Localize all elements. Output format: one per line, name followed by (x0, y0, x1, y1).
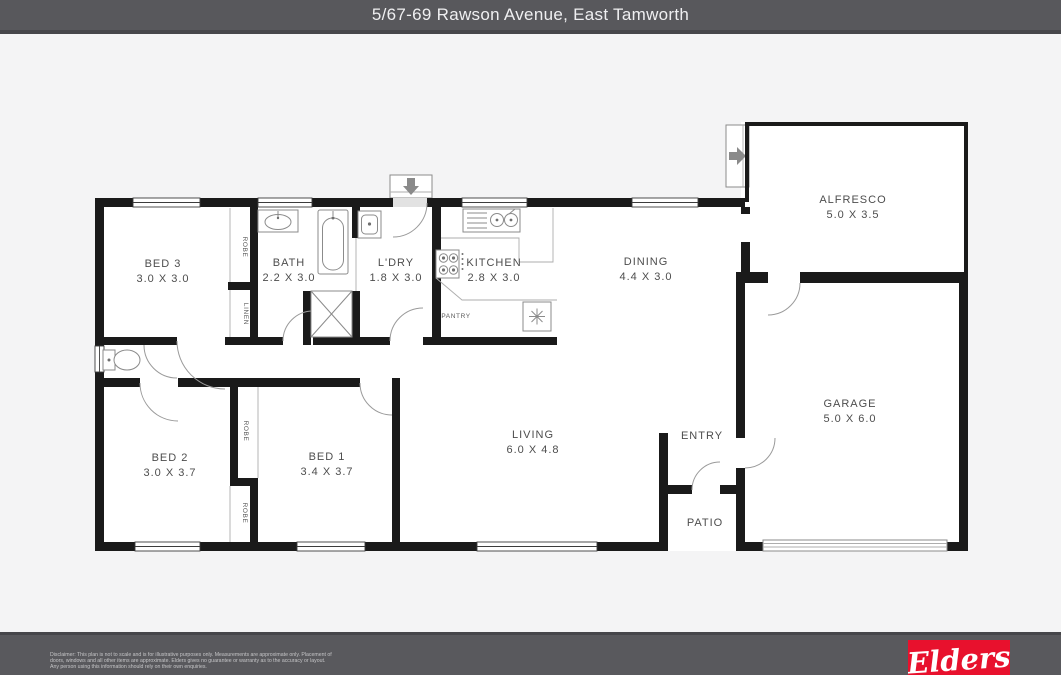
room-label-bath: BATH (273, 257, 306, 269)
title-bar: 5/67-69 Rawson Avenue, East Tamworth (0, 0, 1061, 30)
window (632, 198, 698, 207)
shower-icon (311, 291, 352, 337)
room-dims-bed1: 3.4 X 3.7 (300, 466, 353, 478)
room-dims-dining: 4.4 X 3.0 (619, 271, 672, 283)
room-label-entry: ENTRY (681, 430, 723, 442)
room-dims-bed2: 3.0 X 3.7 (143, 467, 196, 479)
back-door-opening (393, 198, 427, 207)
window (477, 542, 597, 551)
room-label-living: LIVING (512, 429, 554, 441)
room-label-laundry: L'DRY (378, 257, 414, 269)
vanity-basin-icon (258, 210, 298, 232)
footer-bar: Disclaimer: This plan is not to scale an… (0, 635, 1061, 675)
room-label-patio: PATIO (687, 517, 723, 529)
window (462, 198, 527, 207)
room-dims-bed3: 3.0 X 3.0 (136, 273, 189, 285)
room-label-dining: DINING (624, 256, 669, 268)
room-label-garage: GARAGE (823, 398, 876, 410)
fridge-icon (523, 302, 551, 331)
garage-floor (736, 272, 968, 551)
room-dims-alfresco: 5.0 X 3.5 (826, 209, 879, 221)
room-label-alfresco: ALFRESCO (819, 194, 886, 206)
closet-label-pantry: PANTRY (441, 313, 470, 320)
kitchen-sink-icon (463, 209, 520, 232)
window (258, 198, 312, 207)
room-label-bed3: BED 3 (145, 258, 182, 270)
laundry-tub-icon (358, 211, 381, 238)
closet-label-linen: LINEN (242, 303, 249, 325)
elders-logo-text: Elders (908, 641, 1010, 675)
window (133, 198, 200, 207)
room-dims-laundry: 1.8 X 3.0 (369, 272, 422, 284)
room-label-bed2: BED 2 (152, 452, 189, 464)
bathtub-icon (318, 210, 348, 274)
closet-label-robe-bed3: ROBE (241, 237, 248, 258)
window (297, 542, 365, 551)
house-floor (95, 198, 745, 551)
room-dims-garage: 5.0 X 6.0 (823, 413, 876, 425)
garage-door (763, 540, 947, 551)
toilet-icon (103, 350, 140, 370)
stove-icon (436, 250, 464, 278)
closet-label-robe-bed1: ROBE (242, 421, 249, 442)
room-dims-kitchen: 2.8 X 3.0 (467, 272, 520, 284)
room-dims-living: 6.0 X 4.8 (506, 444, 559, 456)
entry-indicator-top (390, 175, 432, 198)
closet-label-robe-bed2: ROBE (241, 503, 248, 524)
room-dims-bath: 2.2 X 3.0 (262, 272, 315, 284)
floor-plan: BED 3 3.0 X 3.0 BATH 2.2 X 3.0 L'DRY 1.8… (0, 34, 1061, 632)
disclaimer-text: Disclaimer: This plan is not to scale an… (50, 652, 610, 671)
elders-logo: Elders (908, 640, 1010, 675)
floor-plan-drawing: BED 3 3.0 X 3.0 BATH 2.2 X 3.0 L'DRY 1.8… (0, 34, 1061, 632)
room-label-kitchen: KITCHEN (466, 257, 521, 269)
room-label-bed1: BED 1 (309, 451, 346, 463)
page-title: 5/67-69 Rawson Avenue, East Tamworth (372, 5, 689, 25)
window (135, 542, 200, 551)
disclaimer-line: Any person using this information should… (50, 664, 610, 670)
